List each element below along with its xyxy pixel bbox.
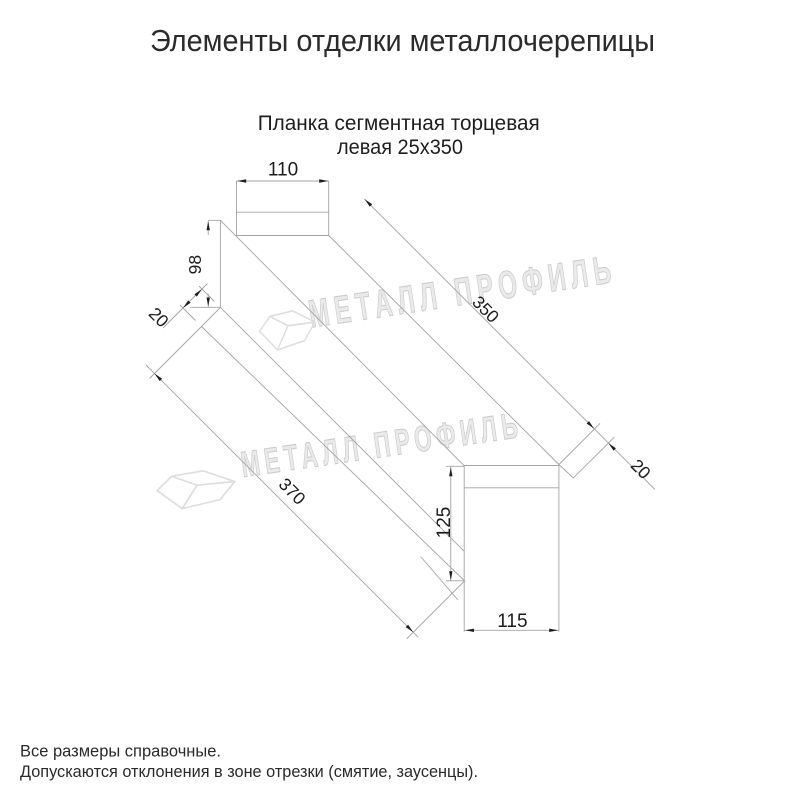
svg-text:125: 125 (434, 507, 455, 539)
svg-text:Элементы отделки металлочерепи: Элементы отделки металлочерепицы (150, 23, 655, 58)
svg-text:левая 25х350: левая 25х350 (337, 136, 463, 159)
svg-text:Все размеры справочные.: Все размеры справочные. (20, 742, 221, 761)
svg-text:115: 115 (497, 611, 527, 632)
svg-text:Планка сегментная торцевая: Планка сегментная торцевая (258, 112, 540, 135)
svg-text:110: 110 (268, 160, 298, 181)
svg-text:98: 98 (185, 255, 205, 274)
svg-text:Допускаются отклонения в зоне: Допускаются отклонения в зоне отрезки (с… (20, 762, 478, 781)
